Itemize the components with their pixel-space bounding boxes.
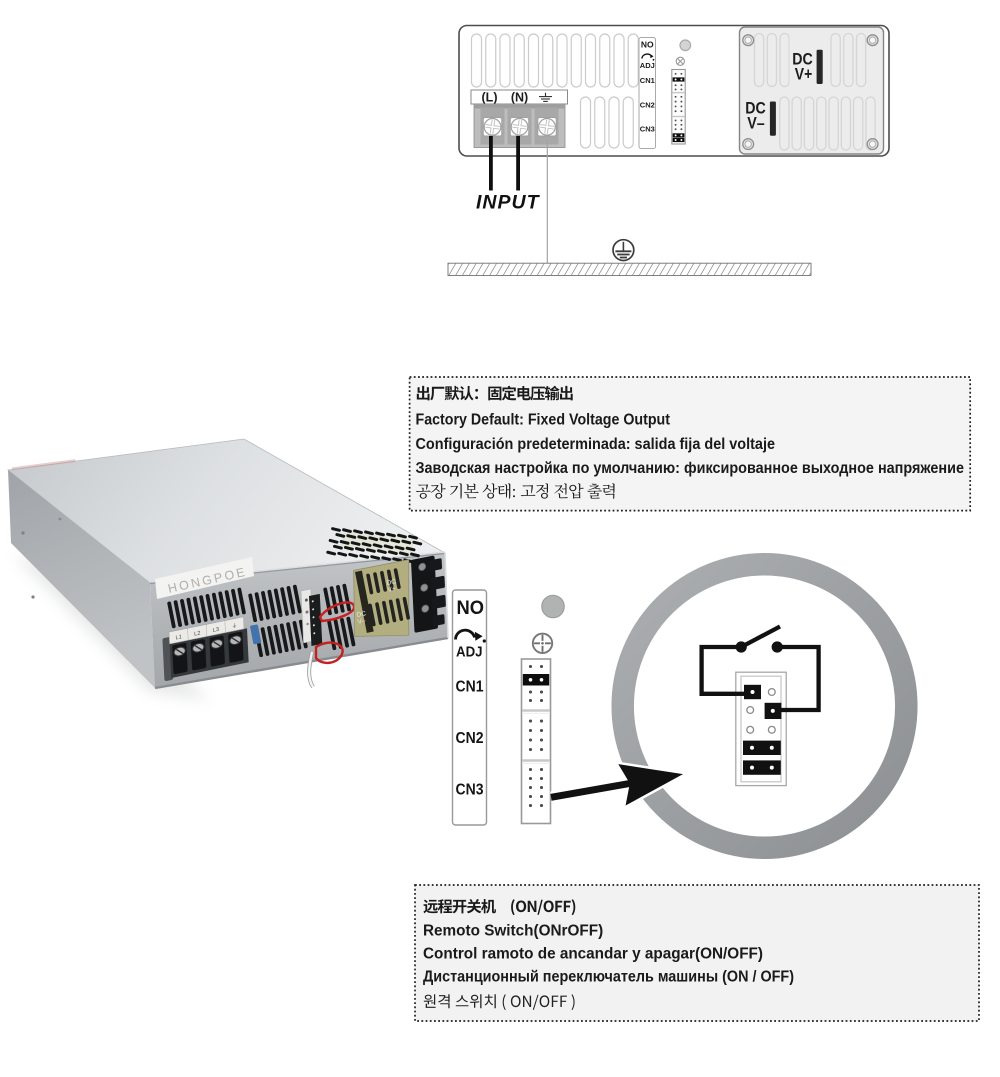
svg-text:NO: NO (457, 598, 485, 619)
svg-text:CN1: CN1 (456, 679, 484, 696)
svg-text:CN3: CN3 (640, 125, 655, 134)
svg-text:(L): (L) (482, 91, 498, 105)
svg-text:Заводская настройка по умолчан: Заводская настройка по умолчанию: фиксир… (416, 460, 965, 477)
svg-text:L3: L3 (213, 627, 219, 634)
svg-text:CN2: CN2 (640, 101, 655, 110)
svg-text:L2: L2 (194, 631, 200, 638)
svg-text:ADJ: ADJ (640, 61, 655, 70)
svg-text:CN3: CN3 (456, 782, 484, 799)
svg-text:V+: V+ (795, 65, 813, 84)
svg-text:Remoto Switch(ONrOFF): Remoto Switch(ONrOFF) (423, 923, 603, 940)
svg-text:CN1: CN1 (640, 76, 655, 85)
svg-text:V–: V– (747, 114, 765, 133)
svg-text:(N): (N) (511, 91, 528, 105)
svg-text:ADJ: ADJ (456, 644, 483, 661)
svg-text:Configuración predeterminada:: Configuración predeterminada: salida fij… (416, 436, 776, 453)
svg-text:Дистанционный переключатель ма: Дистанционный переключатель машины (ON /… (423, 969, 794, 986)
svg-text:Control ramoto de ancandar y a: Control ramoto de ancandar y apagar(ON/O… (423, 946, 763, 963)
svg-text:⏚: ⏚ (232, 622, 238, 630)
svg-text:Factory Default: Fixed Voltage: Factory Default: Fixed Voltage Output (416, 412, 671, 429)
svg-text:L1: L1 (175, 634, 181, 641)
svg-text:NO: NO (641, 40, 654, 50)
svg-text:INPUT: INPUT (476, 192, 541, 214)
svg-text:CN2: CN2 (456, 730, 484, 747)
